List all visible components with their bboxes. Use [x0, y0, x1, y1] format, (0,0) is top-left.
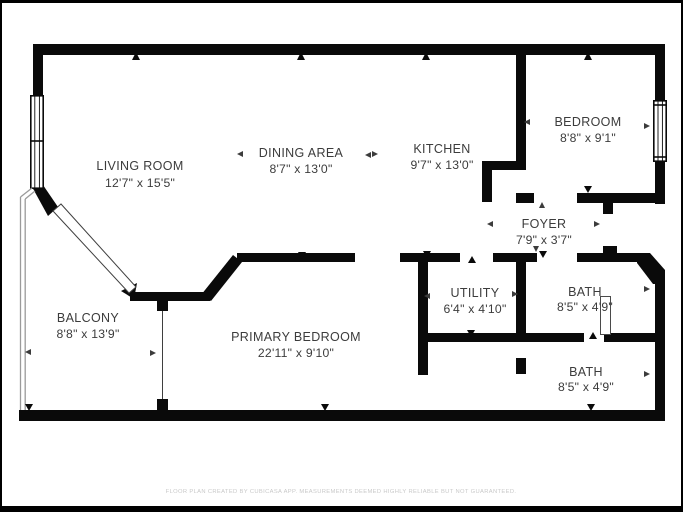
- measure-arrow-left: [25, 349, 31, 355]
- room-label-foyer: FOYER: [522, 217, 567, 231]
- kitchen-alcove-wall-vertical: [482, 161, 492, 202]
- sliding-door-stub-bottom: [157, 399, 168, 410]
- bedroom-window: [654, 101, 666, 161]
- room-dims-kitchen: 9'7" x 13'0": [410, 158, 473, 172]
- foyer-bottom-wall-seg4: [577, 253, 641, 262]
- door-marker: [539, 251, 547, 258]
- sliding-door-stub-top: [157, 298, 168, 311]
- balcony-door-leaf: [53, 204, 136, 293]
- left-wall-upper: [33, 44, 43, 97]
- bedroom-bottom-wall-right: [577, 193, 665, 203]
- utility-left-wall: [418, 253, 428, 375]
- bottom-wall: [19, 410, 665, 421]
- kitchen-bedroom-divider-wall: [516, 44, 526, 170]
- right-wall-upper: [655, 44, 665, 102]
- room-dims-primary-bedroom: 22'11" x 9'10": [258, 346, 334, 360]
- room-label-bath-1: BATH: [568, 285, 602, 299]
- room-dims-balcony: 8'8" x 13'9": [56, 327, 119, 341]
- door-marker: [25, 404, 33, 411]
- foyer-bottom-wall-seg1: [237, 253, 355, 262]
- door-marker: [321, 404, 329, 411]
- measure-arrow-right: [150, 350, 156, 356]
- utility-right-wall-stub: [516, 358, 526, 374]
- measure-arrow-right: [644, 123, 650, 129]
- bath-divider-wall-left: [526, 333, 584, 342]
- door-marker: [584, 186, 592, 193]
- room-dims-bedroom: 8'8" x 9'1": [560, 131, 616, 145]
- living-room-window: [31, 96, 43, 188]
- frame-top: [0, 0, 683, 3]
- measure-arrow-left: [237, 151, 243, 157]
- room-label-bedroom: BEDROOM: [554, 115, 621, 129]
- room-dims-bath-1: 8'5" x 4'9": [557, 300, 613, 314]
- room-dims-bath-2: 8'5" x 4'9": [558, 380, 614, 394]
- room-label-primary-bedroom: PRIMARY BEDROOM: [231, 330, 361, 344]
- room-label-kitchen: KITCHEN: [413, 142, 470, 156]
- top-wall: [33, 44, 665, 55]
- bedroom-bottom-wall-left: [516, 193, 534, 203]
- door-marker: [587, 404, 595, 411]
- room-label-utility: UTILITY: [451, 286, 500, 300]
- right-wall-lower: [655, 278, 665, 418]
- measure-arrow-left: [365, 152, 371, 158]
- measure-arrow-left: [487, 221, 493, 227]
- measure-arrow-up: [539, 202, 545, 208]
- primary-bedroom-top-wall: [130, 292, 210, 301]
- measure-arrow-right: [372, 151, 378, 157]
- foyer-bottom-wall-seg2: [400, 253, 460, 262]
- room-dims-dining-area: 8'7" x 13'0": [269, 162, 332, 176]
- room-label-bath-2: BATH: [569, 365, 603, 379]
- entry-corner-bump: [603, 246, 617, 253]
- door-marker: [468, 256, 476, 263]
- balcony-outline: [21, 188, 36, 410]
- room-dims-foyer: 7'9" x 3'7": [516, 233, 572, 247]
- room-dims-living-room: 12'7" x 15'5": [105, 176, 175, 190]
- floor-plan-canvas: LIVING ROOM 12'7" x 15'5" DINING AREA 8'…: [0, 0, 683, 512]
- measure-arrow-right: [644, 286, 650, 292]
- frame-left: [0, 0, 2, 512]
- utility-right-wall: [516, 253, 526, 342]
- foyer-bottom-wall-seg3: [493, 253, 537, 262]
- measure-arrow-right: [644, 371, 650, 377]
- doors: [53, 204, 163, 399]
- room-label-balcony: BALCONY: [57, 311, 120, 325]
- room-label-living-room: LIVING ROOM: [96, 159, 183, 173]
- primary-bedroom-diagonal-wall: [201, 255, 242, 301]
- measure-arrow-right: [594, 221, 600, 227]
- footer-note: FLOOR PLAN CREATED BY CUBICASA APP. MEAS…: [166, 489, 517, 495]
- bath-divider-wall-right: [604, 333, 665, 342]
- floor-plan-svg: LIVING ROOM 12'7" x 15'5" DINING AREA 8'…: [0, 0, 683, 512]
- frame-bottom: [0, 506, 683, 512]
- room-label-dining-area: DINING AREA: [259, 146, 344, 160]
- foyer-right-wall-stub: [603, 202, 613, 214]
- room-dims-utility: 6'4" x 4'10": [443, 302, 506, 316]
- door-marker: [589, 332, 597, 339]
